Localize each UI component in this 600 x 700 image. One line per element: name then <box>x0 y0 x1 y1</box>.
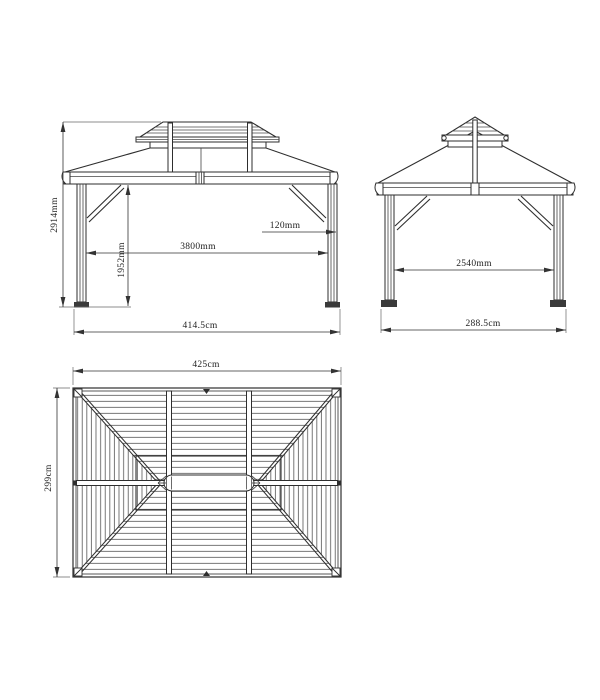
technical-drawing-canvas: 2914mm 1952mm 3800mm 120mm 414.5cm <box>0 0 600 700</box>
side-eave-beam <box>375 183 575 195</box>
side-post-right <box>554 195 563 300</box>
dim-label-plan-width: 425cm <box>192 360 220 370</box>
side-center-plate <box>471 183 479 195</box>
side-brace-left <box>395 196 427 226</box>
front-vent-post-left <box>168 123 173 172</box>
side-corbel-left <box>375 183 383 195</box>
front-vent-post-right <box>248 123 253 172</box>
side-finial-right <box>504 136 508 140</box>
front-upper-tier-roof <box>140 122 276 137</box>
front-brace-left <box>87 185 121 218</box>
plan-ridge-capsule <box>158 475 260 491</box>
dim-label-plan-depth: 299cm <box>44 464 54 492</box>
front-eave-beam <box>62 172 338 184</box>
front-brace-right <box>292 185 326 218</box>
side-finial-left <box>442 136 446 140</box>
dim-label-front-height: 2914mm <box>50 197 60 233</box>
plan-view: 425cm 299cm <box>44 360 341 577</box>
side-post-left <box>385 195 394 300</box>
front-post-left <box>77 184 86 302</box>
front-post-right <box>328 184 337 302</box>
side-center-post <box>473 120 477 183</box>
dim-label-side-span: 2540mm <box>456 259 492 269</box>
front-corbel-right <box>330 172 338 184</box>
front-dimensions: 2914mm 1952mm 3800mm 120mm 414.5cm <box>50 122 340 335</box>
side-posts <box>381 195 566 307</box>
dim-label-front-post-width: 120mm <box>270 221 301 231</box>
dim-label-front-overall-width: 414.5cm <box>182 321 217 331</box>
front-foot-right <box>325 302 340 308</box>
side-brace-right <box>521 196 553 226</box>
front-main-roof <box>65 122 335 172</box>
side-corbel-right <box>567 183 575 195</box>
dim-label-front-clear-height: 1952mm <box>117 242 127 278</box>
side-foot-right <box>550 300 566 307</box>
side-foot-left <box>381 300 397 307</box>
gazebo-drawing: 2914mm 1952mm 3800mm 120mm 414.5cm <box>0 0 600 700</box>
side-main-roof <box>378 117 572 183</box>
dim-label-front-span: 3800mm <box>180 242 216 252</box>
front-center-plate <box>196 172 204 184</box>
side-elevation-view: 2540mm 288.5cm <box>375 117 575 333</box>
front-elevation-view: 2914mm 1952mm 3800mm 120mm 414.5cm <box>50 122 340 335</box>
dim-label-side-overall-width: 288.5cm <box>465 319 500 329</box>
side-dimensions: 2540mm 288.5cm <box>381 259 566 333</box>
